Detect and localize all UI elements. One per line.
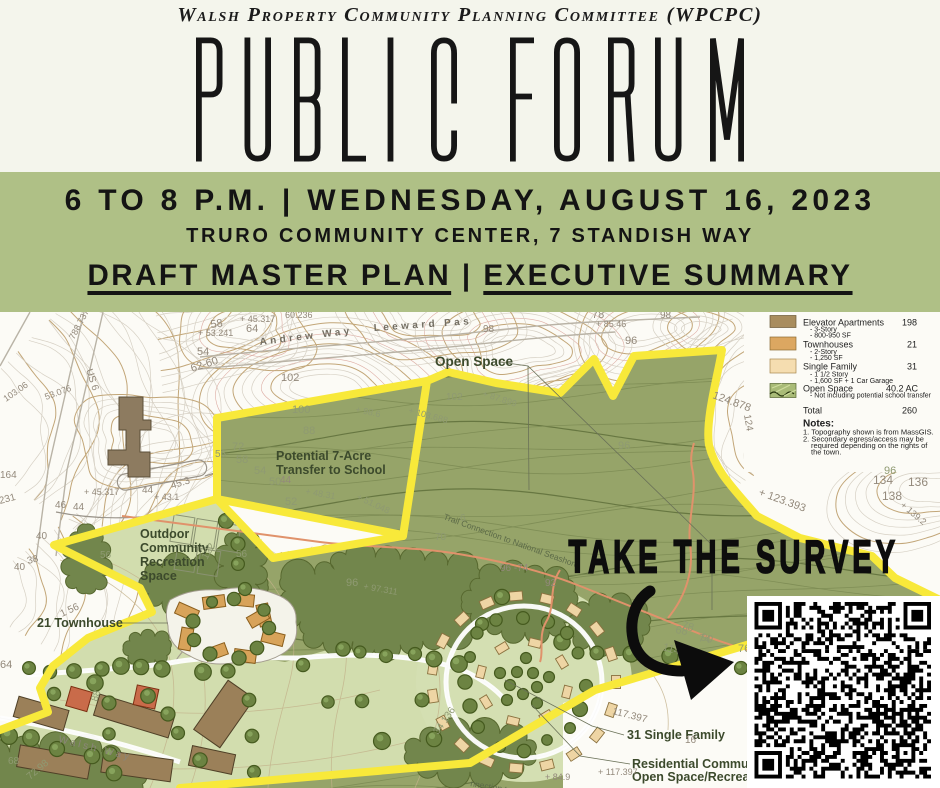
svg-text:Recreation: Recreation [140, 555, 205, 569]
svg-text:88: 88 [303, 425, 315, 437]
svg-text:Outdoor: Outdoor [140, 527, 189, 541]
svg-text:Open Space/Recreatio: Open Space/Recreatio [632, 770, 765, 784]
svg-text:58: 58 [236, 454, 248, 466]
svg-text:56: 56 [100, 550, 112, 561]
svg-text:6: 6 [460, 513, 466, 524]
svg-text:98: 98 [660, 312, 672, 321]
svg-text:138: 138 [882, 489, 902, 503]
svg-text:102: 102 [446, 392, 463, 403]
svg-text:the town.: the town. [811, 448, 841, 457]
svg-text:- Not including potential scho: - Not including potential school transfe… [810, 393, 932, 400]
svg-text:31 Single Family: 31 Single Family [627, 728, 725, 742]
svg-text:40: 40 [14, 562, 26, 573]
svg-text:102: 102 [281, 372, 299, 384]
svg-text:+ 117.397: + 117.397 [598, 767, 638, 777]
svg-text:54: 54 [254, 465, 266, 477]
svg-text:96: 96 [346, 577, 358, 589]
svg-text:TAKE THE SURVEY: TAKE THE SURVEY [569, 532, 900, 583]
svg-text:56: 56 [236, 549, 248, 560]
svg-text:16: 16 [685, 735, 697, 746]
svg-text:96: 96 [884, 465, 896, 477]
svg-text:70: 70 [435, 532, 447, 543]
svg-text:96 -74: 96 -74 [500, 563, 529, 574]
svg-text:50: 50 [269, 476, 281, 488]
svg-text:Transfer to School: Transfer to School [276, 463, 386, 477]
svg-text:- 800-950 SF: - 800-950 SF [810, 333, 851, 340]
svg-text:21 Townhouse: 21 Townhouse [37, 616, 123, 630]
svg-text:64: 64 [0, 659, 12, 671]
svg-text:+ 85.46: + 85.46 [596, 319, 626, 329]
svg-text:Potential 7-Acre: Potential 7-Acre [276, 449, 371, 463]
svg-text:72: 72 [232, 441, 244, 453]
svg-text:44: 44 [73, 502, 85, 513]
svg-text:64: 64 [246, 323, 258, 335]
svg-text:136: 136 [908, 475, 928, 489]
svg-text:40: 40 [36, 531, 48, 542]
svg-text:+ 45.317: + 45.317 [240, 314, 275, 324]
svg-text:60.236: 60.236 [285, 312, 313, 320]
svg-text:52: 52 [285, 496, 297, 508]
svg-text:260: 260 [902, 406, 917, 416]
svg-text:56: 56 [215, 449, 227, 460]
svg-text:96: 96 [625, 335, 637, 347]
svg-text:+ 53.241: + 53.241 [198, 328, 233, 338]
svg-text:54: 54 [197, 346, 209, 358]
svg-text:21: 21 [907, 340, 917, 350]
svg-text:98: 98 [483, 324, 495, 335]
svg-text:+ 43.1: + 43.1 [154, 492, 179, 502]
svg-text:96: 96 [618, 440, 630, 452]
svg-text:92: 92 [545, 578, 557, 589]
svg-text:44: 44 [142, 485, 154, 496]
svg-text:+ 45.317: + 45.317 [84, 487, 119, 497]
svg-text:164: 164 [0, 470, 17, 481]
svg-text:Residential Communit: Residential Communit [632, 757, 765, 771]
svg-text:68: 68 [8, 756, 20, 767]
svg-text:31: 31 [907, 362, 917, 372]
svg-text:Single Family: Single Family [803, 362, 858, 372]
svg-text:Open Space: Open Space [435, 354, 514, 369]
svg-text:46: 46 [55, 500, 67, 511]
svg-text:100: 100 [292, 404, 310, 416]
svg-text:198: 198 [902, 318, 917, 328]
svg-text:Community: Community [140, 541, 209, 555]
svg-text:Total: Total [803, 406, 822, 416]
svg-text:Space: Space [140, 569, 177, 583]
svg-text:+ 84.9: + 84.9 [545, 772, 570, 782]
svg-text:44: 44 [280, 475, 292, 486]
